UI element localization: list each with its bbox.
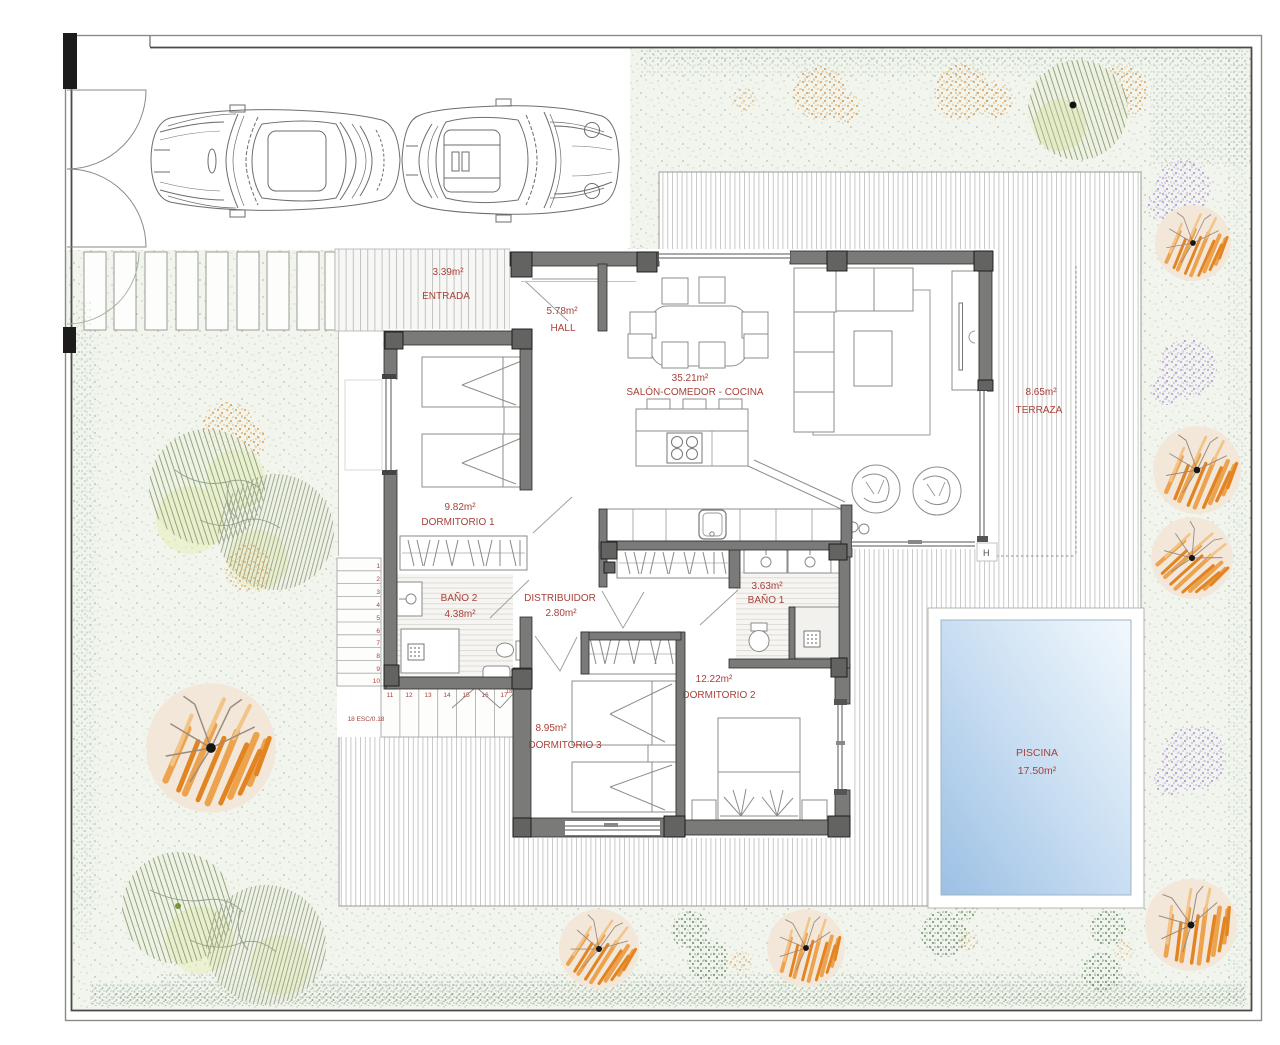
- svg-text:5.78m²: 5.78m²: [546, 306, 578, 317]
- svg-text:TERRAZA: TERRAZA: [1016, 405, 1063, 416]
- svg-text:BAÑO 1: BAÑO 1: [748, 593, 785, 606]
- svg-text:9: 9: [376, 666, 380, 673]
- svg-text:4.38m²: 4.38m²: [444, 609, 476, 620]
- svg-text:PISCINA: PISCINA: [1016, 747, 1058, 759]
- svg-text:14: 14: [443, 692, 451, 699]
- svg-text:2: 2: [376, 576, 380, 583]
- svg-text:H: H: [983, 548, 990, 558]
- svg-text:18: 18: [506, 689, 513, 695]
- svg-text:17.50m²: 17.50m²: [1018, 765, 1057, 777]
- svg-text:3: 3: [376, 589, 380, 596]
- svg-text:DORMITORIO 1: DORMITORIO 1: [421, 517, 495, 528]
- svg-text:35.21m²: 35.21m²: [672, 373, 709, 384]
- svg-text:12: 12: [405, 692, 413, 699]
- svg-text:DORMITORIO 2: DORMITORIO 2: [682, 690, 756, 701]
- svg-text:8.65m²: 8.65m²: [1025, 387, 1057, 398]
- svg-text:7: 7: [376, 640, 380, 647]
- svg-text:18 ESC/0.18: 18 ESC/0.18: [348, 716, 385, 723]
- svg-text:11: 11: [387, 692, 394, 699]
- svg-text:SALÓN-COMEDOR - COCINA: SALÓN-COMEDOR - COCINA: [626, 385, 764, 398]
- svg-text:DORMITORIO 3: DORMITORIO 3: [528, 740, 602, 751]
- svg-text:2.80m²: 2.80m²: [545, 608, 577, 619]
- svg-text:8.95m²: 8.95m²: [535, 723, 567, 734]
- svg-text:9.82m²: 9.82m²: [444, 502, 476, 513]
- svg-text:ENTRADA: ENTRADA: [422, 291, 470, 302]
- svg-text:10: 10: [373, 678, 381, 685]
- svg-text:13: 13: [424, 692, 432, 699]
- svg-text:3.39m²: 3.39m²: [432, 267, 464, 278]
- svg-text:6: 6: [376, 628, 380, 635]
- svg-text:12.22m²: 12.22m²: [696, 674, 733, 685]
- svg-text:4: 4: [376, 602, 380, 609]
- svg-text:1: 1: [376, 563, 380, 570]
- svg-text:BAÑO 2: BAÑO 2: [441, 591, 478, 604]
- svg-text:8: 8: [376, 653, 380, 660]
- svg-text:5: 5: [376, 615, 380, 622]
- svg-text:3.63m²: 3.63m²: [751, 581, 783, 592]
- svg-text:DISTRIBUIDOR: DISTRIBUIDOR: [524, 593, 596, 604]
- svg-text:HALL: HALL: [550, 323, 575, 334]
